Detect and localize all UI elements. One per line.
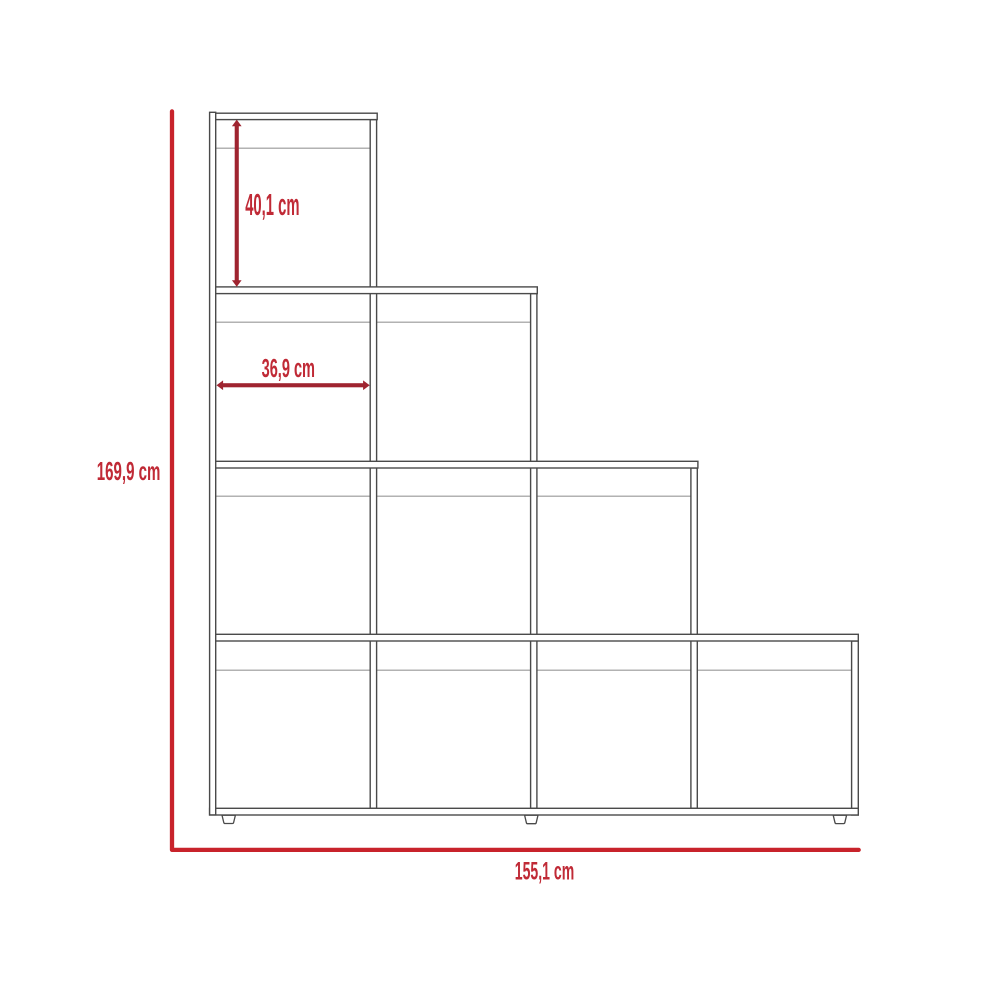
svg-text:155,1 cm: 155,1 cm: [515, 859, 574, 886]
svg-text:40,1 cm: 40,1 cm: [245, 189, 299, 222]
svg-text:36,9 cm: 36,9 cm: [262, 353, 315, 383]
svg-text:169,9 cm: 169,9 cm: [97, 458, 161, 486]
